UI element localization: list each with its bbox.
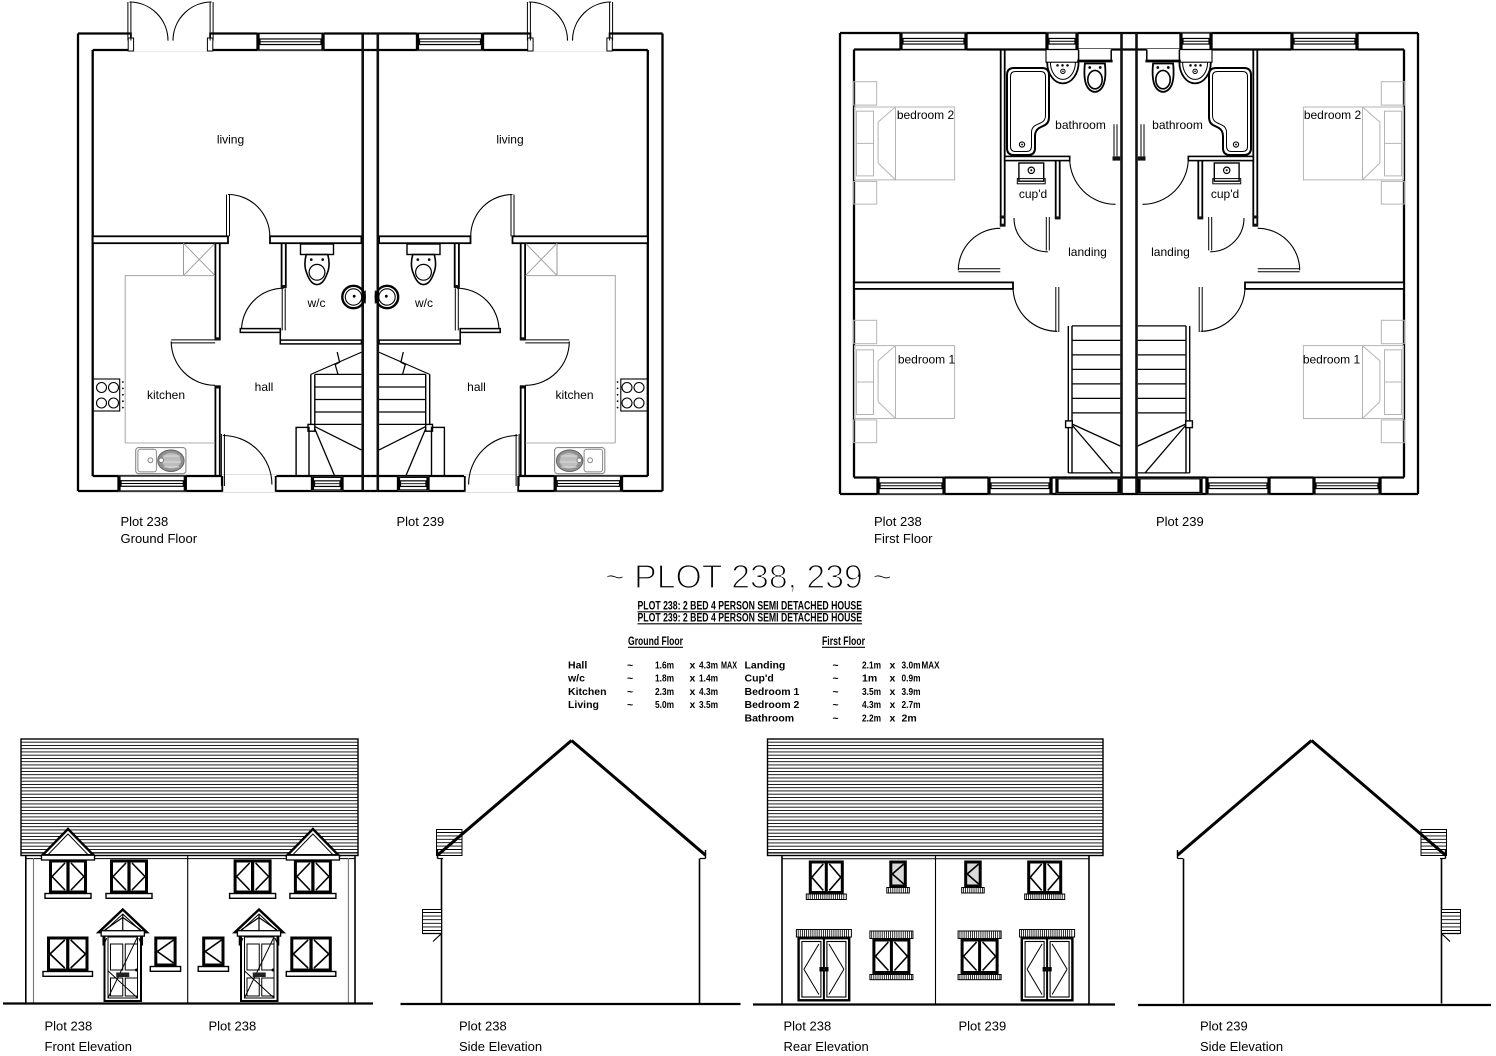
svg-text:living: living (496, 133, 523, 147)
svg-text:2.3m: 2.3m (655, 686, 674, 698)
svg-text:0.9m: 0.9m (902, 673, 921, 685)
svg-text:Plot 239: Plot 239 (1200, 1019, 1248, 1034)
svg-text:~: ~ (833, 673, 839, 685)
svg-text:x: x (890, 712, 896, 724)
svg-text:2.2m: 2.2m (862, 712, 881, 724)
svg-text:Ground Floor: Ground Floor (121, 531, 198, 546)
svg-text:hall: hall (467, 380, 486, 394)
svg-text:x: x (890, 660, 896, 672)
svg-text:kitchen: kitchen (555, 388, 593, 402)
svg-text:~ PLOT 238, 239 ~: ~ PLOT 238, 239 ~ (605, 558, 892, 595)
svg-text:First Floor: First Floor (874, 531, 933, 546)
svg-text:2.1m: 2.1m (862, 660, 881, 672)
svg-text:Side Elevation: Side Elevation (459, 1039, 542, 1054)
svg-text:Cup'd: Cup'd (745, 673, 774, 685)
svg-text:cup'd: cup'd (1019, 187, 1047, 201)
svg-text:Bedroom 2: Bedroom 2 (745, 699, 800, 711)
svg-text:Landing: Landing (745, 660, 786, 672)
svg-text:w/c: w/c (307, 296, 326, 310)
svg-text:Living: Living (568, 699, 599, 711)
svg-text:~: ~ (833, 660, 839, 672)
svg-text:3.5m: 3.5m (699, 699, 718, 711)
svg-text:kitchen: kitchen (147, 388, 185, 402)
svg-text:1.8m: 1.8m (655, 673, 674, 685)
svg-text:Front Elevation: Front Elevation (45, 1039, 132, 1054)
svg-text:x: x (690, 699, 696, 711)
svg-text:3.9m: 3.9m (902, 686, 921, 698)
svg-text:bedroom 2: bedroom 2 (897, 108, 955, 122)
svg-text:Hall: Hall (568, 660, 587, 672)
svg-text:2m: 2m (902, 712, 917, 724)
svg-text:bathroom: bathroom (1152, 118, 1203, 132)
svg-text:Plot 238: Plot 238 (784, 1019, 832, 1034)
svg-text:2.7m: 2.7m (902, 699, 921, 711)
svg-text:~: ~ (627, 673, 633, 685)
svg-text:~: ~ (627, 660, 633, 672)
svg-text:1.4m: 1.4m (699, 673, 718, 685)
svg-text:5.0m: 5.0m (655, 699, 674, 711)
svg-text:x: x (690, 660, 696, 672)
svg-text:First Floor: First Floor (822, 634, 865, 648)
svg-text:living: living (217, 133, 244, 147)
svg-text:~: ~ (833, 686, 839, 698)
svg-text:3.0m: 3.0m (902, 660, 921, 672)
svg-text:Plot 238: Plot 238 (459, 1019, 507, 1034)
svg-text:4.3m: 4.3m (699, 686, 718, 698)
svg-text:hall: hall (255, 380, 274, 394)
svg-text:bedroom 2: bedroom 2 (1304, 108, 1362, 122)
svg-text:4.3m: 4.3m (862, 699, 881, 711)
svg-text:bedroom 1: bedroom 1 (898, 353, 956, 367)
svg-text:cup'd: cup'd (1211, 187, 1239, 201)
svg-text:Rear Elevation: Rear Elevation (784, 1039, 869, 1054)
svg-text:Kitchen: Kitchen (568, 686, 607, 698)
svg-text:MAX: MAX (922, 660, 940, 672)
svg-text:Plot 239: Plot 239 (959, 1019, 1007, 1034)
svg-text:MAX: MAX (721, 660, 737, 672)
svg-text:x: x (890, 699, 896, 711)
svg-text:Plot 238: Plot 238 (121, 514, 169, 529)
svg-text:w/c: w/c (414, 296, 433, 310)
svg-text:PLOT 239: 2 BED 4 PERSON SEMI: PLOT 239: 2 BED 4 PERSON SEMI DETACHED H… (638, 611, 863, 625)
svg-text:Bathroom: Bathroom (745, 712, 795, 724)
svg-text:Ground Floor: Ground Floor (628, 634, 683, 648)
svg-text:~: ~ (627, 699, 633, 711)
svg-text:~: ~ (833, 699, 839, 711)
svg-text:landing: landing (1068, 245, 1107, 259)
svg-text:4.3m: 4.3m (699, 660, 718, 672)
svg-text:Plot 238: Plot 238 (874, 514, 922, 529)
svg-text:Side Elevation: Side Elevation (1200, 1039, 1283, 1054)
svg-text:bathroom: bathroom (1055, 118, 1106, 132)
svg-text:1m: 1m (862, 673, 877, 685)
svg-text:x: x (890, 686, 896, 698)
svg-text:3.5m: 3.5m (862, 686, 881, 698)
svg-text:Plot 239: Plot 239 (397, 514, 445, 529)
svg-text:Plot 238: Plot 238 (209, 1019, 257, 1034)
svg-text:~: ~ (627, 686, 633, 698)
svg-text:x: x (690, 686, 696, 698)
svg-text:Plot 238: Plot 238 (45, 1019, 93, 1034)
svg-text:~: ~ (833, 712, 839, 724)
svg-text:Bedroom 1: Bedroom 1 (745, 686, 800, 698)
svg-text:x: x (890, 673, 896, 685)
svg-text:w/c: w/c (567, 673, 585, 685)
svg-text:x: x (690, 673, 696, 685)
svg-text:Plot 239: Plot 239 (1156, 514, 1204, 529)
svg-text:bedroom 1: bedroom 1 (1303, 353, 1361, 367)
svg-text:landing: landing (1151, 245, 1190, 259)
svg-text:1.6m: 1.6m (655, 660, 674, 672)
